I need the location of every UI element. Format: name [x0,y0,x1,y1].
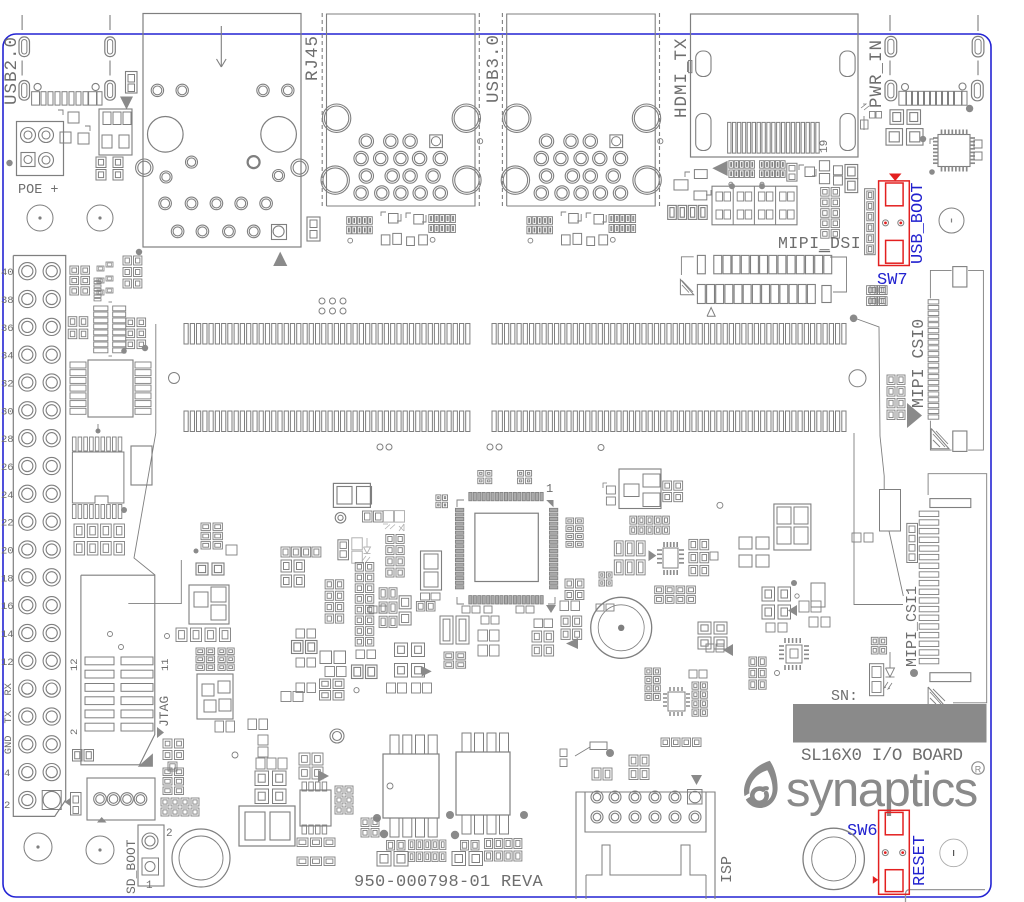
svg-text:32: 32 [1,379,14,391]
svg-text:18: 18 [1,573,14,585]
svg-text:RJ45: RJ45 [303,35,323,81]
svg-text:1: 1 [546,482,553,496]
svg-text:RESET: RESET [911,835,930,886]
svg-text:2: 2 [166,828,173,840]
svg-text:2: 2 [69,729,81,735]
svg-text:MIPI CSI0: MIPI CSI0 [909,319,928,408]
svg-text:19: 19 [819,140,831,153]
svg-text:20: 20 [1,546,14,558]
svg-text:4: 4 [4,768,10,780]
svg-text:USB_BOOT: USB_BOOT [909,182,928,264]
svg-text:38: 38 [1,295,14,307]
svg-text:RX: RX [3,682,15,695]
svg-text:SN:: SN: [831,688,858,705]
svg-text:24: 24 [1,490,14,502]
svg-text:11: 11 [160,658,172,671]
svg-text:ISP: ISP [719,856,736,883]
svg-text:40: 40 [1,267,14,279]
svg-text:16: 16 [1,601,14,613]
svg-text:14: 14 [1,629,14,641]
svg-text:12: 12 [69,658,81,671]
svg-text:HDMI_TX: HDMI_TX [672,37,692,118]
svg-text:PWR_IN: PWR_IN [867,39,887,108]
svg-text:POE +: POE + [18,183,59,198]
svg-text:2: 2 [4,800,10,812]
svg-text:synaptics: synaptics [786,763,977,817]
svg-text:36: 36 [1,323,14,335]
svg-text:MIPI_CSI1: MIPI_CSI1 [904,586,921,667]
svg-text:GND: GND [3,735,15,754]
svg-text:26: 26 [1,462,14,474]
svg-text:1: 1 [146,880,153,892]
svg-text:34: 34 [1,351,14,363]
svg-text:22: 22 [1,518,14,530]
svg-text:SW6: SW6 [847,822,878,841]
svg-text:12: 12 [1,657,14,669]
svg-text:30: 30 [1,406,14,418]
svg-text:USB3.0: USB3.0 [484,34,504,103]
svg-text:JTAG: JTAG [157,696,172,727]
svg-text:TX: TX [3,710,15,723]
svg-text:28: 28 [1,434,14,446]
svg-text:MIPI_DSI: MIPI_DSI [778,234,861,253]
svg-text:R: R [975,765,982,775]
svg-text:SD_BOOT: SD_BOOT [124,839,139,894]
svg-text:950-000798-01 REVA: 950-000798-01 REVA [354,873,544,892]
